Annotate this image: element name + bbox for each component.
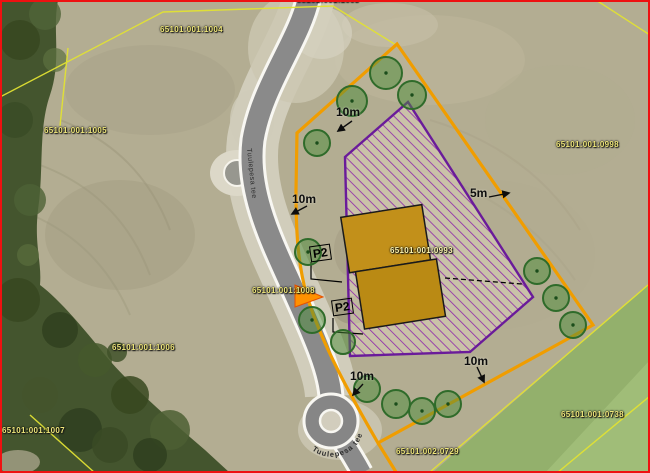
parcel-label-top: 65101:001:1003 <box>296 0 359 4</box>
roundabout <box>304 394 358 448</box>
parcel-label-se-edge: 65101:002:0729 <box>396 447 459 456</box>
dimension-label-top: 10m <box>336 105 360 119</box>
parcel-label-sw-upper: 65101:001:1006 <box>112 343 175 352</box>
parcel-label-road: 65101:001:1008 <box>252 286 315 295</box>
parcel-label-site: 65101:001:0993 <box>390 246 453 255</box>
dimension-label-left: 10m <box>292 192 316 206</box>
parking-symbol-1: P2 <box>309 244 332 263</box>
map-canvas[interactable]: Tuulepesa tee <box>0 0 650 473</box>
dimension-label-right: 5m <box>470 186 487 200</box>
parking-symbol-2: P2 <box>331 298 354 317</box>
parcel-label-east: 65101:001:0998 <box>556 140 619 149</box>
parcel-label-nw: 65101:001:1004 <box>160 25 223 34</box>
dimension-label-bottom-right: 10m <box>464 354 488 368</box>
parcel-label-sw-lower: 65101:001:1007 <box>2 426 65 435</box>
parcel-label-se-green: 65101:001:0738 <box>561 410 624 419</box>
dimension-label-bottom-left: 10m <box>350 369 374 383</box>
parcel-label-west: 65101:001:1005 <box>44 126 107 135</box>
map-viewport[interactable]: Tuulepesa tee 65101:001:1003 65101:001:1… <box>0 0 650 473</box>
